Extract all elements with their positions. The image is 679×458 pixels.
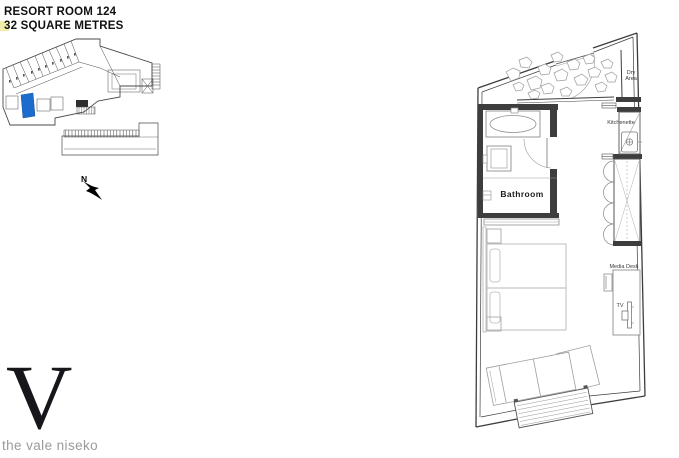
north-arrow-icon	[78, 180, 106, 206]
bathtub	[486, 108, 540, 137]
overview-map	[3, 39, 160, 155]
nightstand-bottom	[487, 317, 501, 331]
genkan-stones	[506, 52, 617, 99]
pillow-2	[490, 292, 500, 323]
tv-label: TV	[613, 303, 627, 309]
overview-deck	[62, 123, 158, 155]
corridor-tabs	[602, 103, 616, 159]
kitchenette-fixtures	[602, 103, 642, 159]
kitchenette-label: Kitchenette	[600, 120, 642, 126]
overview-room-dividers	[6, 41, 120, 94]
bathroom-room	[478, 104, 559, 225]
vanity-sink	[483, 146, 511, 171]
bed-2	[487, 288, 566, 330]
desk-chair	[604, 274, 612, 291]
overview-furniture-dots	[9, 53, 76, 83]
closet	[604, 159, 642, 246]
unit-floorplan	[476, 33, 645, 428]
page-title-line1: RESORT ROOM 124	[4, 6, 124, 20]
dry-area-label: Dry Area	[621, 70, 641, 82]
bathroom-label: Bathroom	[492, 189, 552, 199]
pillow-1	[490, 249, 500, 282]
floorplan-page: RESORT ROOM 124 32 SQUARE METRES	[0, 0, 679, 458]
wall-fixture	[483, 191, 491, 200]
bench-shelf	[484, 219, 559, 225]
north-indicator: N	[78, 174, 108, 206]
logo-tagline: the vale niseko	[2, 438, 98, 453]
page-title: RESORT ROOM 124 32 SQUARE METRES	[4, 6, 124, 33]
beds	[483, 227, 566, 332]
page-title-line2: 32 SQUARE METRES	[4, 20, 124, 34]
logo-mark: V	[6, 351, 72, 443]
closet-bifold-doors	[604, 161, 615, 245]
nightstand-top	[487, 229, 501, 243]
media-desk-label: Media Desk	[605, 264, 643, 270]
plan-drawing	[0, 0, 679, 458]
overview-highlight-room	[21, 93, 35, 118]
overview-stairs	[76, 100, 95, 114]
